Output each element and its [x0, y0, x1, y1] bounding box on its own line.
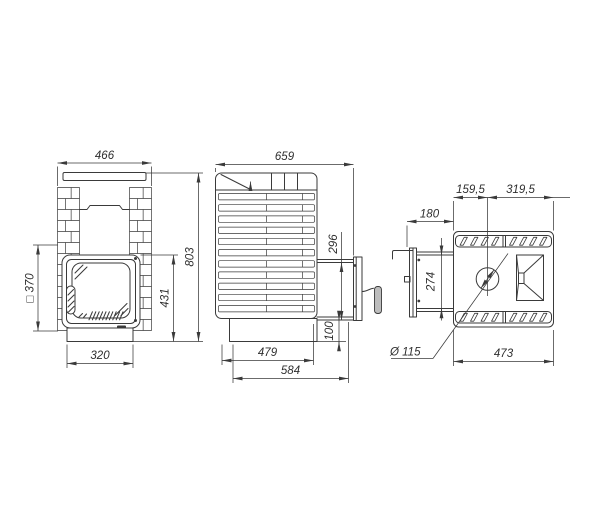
technical-drawing-canvas: 466 803 431 □ 370 320 — [0, 0, 600, 524]
dim-label-body-depth: 479 — [258, 347, 278, 359]
top-door-tunnel — [393, 248, 454, 317]
dim-label-total-height: 803 — [185, 247, 197, 267]
stone-cage-slats — [219, 194, 315, 312]
door-hinge-dot-bottom — [134, 319, 137, 322]
side-top-diagonal — [221, 175, 251, 190]
tunnel-screw-dot-bottom — [417, 300, 420, 303]
door-hinge-dot-top — [134, 257, 137, 260]
tunnel-screw-dot-top — [417, 259, 420, 262]
frame-screw-dot-top — [354, 264, 357, 267]
dim-label-door-bottom-offset: 100 — [324, 321, 336, 341]
dim-label-chimney-from-front: 159,5 — [456, 184, 485, 196]
frame-screw-dot-bottom — [354, 305, 357, 308]
dim-label-chimney-from-back: 319,5 — [506, 184, 535, 196]
dim-label-opening-square: □ 370 — [25, 273, 37, 303]
stove-door — [62, 255, 140, 329]
handle-arm — [362, 288, 374, 291]
top-plate — [63, 173, 146, 181]
side-door-tunnel — [317, 257, 382, 321]
dim-label-chimney-diameter: Ø 115 — [389, 347, 421, 359]
dim-label-door-frame-height: 296 — [328, 234, 340, 255]
front-view: 466 803 431 □ 370 320 — [25, 150, 204, 368]
dim-label-depth-with-tunnel: 584 — [281, 365, 300, 377]
dim-label-tunnel-length: 180 — [420, 209, 440, 221]
dim-label-total-depth: 659 — [275, 151, 295, 163]
dim-label-tunnel-width: 274 — [426, 272, 438, 292]
side-top-dividers — [272, 174, 298, 191]
firebox-top-profile — [80, 206, 130, 210]
top-view: 159,5 319,5 180 274 Ø 115 473 — [389, 184, 570, 366]
dim-label-door-height: 431 — [160, 288, 172, 307]
side-dimensions — [216, 165, 354, 384]
dim-label-base-width: 320 — [90, 350, 110, 362]
front-base — [67, 328, 133, 342]
side-view: 659 296 100 479 584 — [216, 151, 382, 383]
dim-label-top-width: 466 — [95, 150, 115, 162]
side-base — [230, 319, 318, 342]
side-door-handle-grip — [375, 287, 382, 314]
dim-label-body-width: 473 — [494, 348, 514, 360]
